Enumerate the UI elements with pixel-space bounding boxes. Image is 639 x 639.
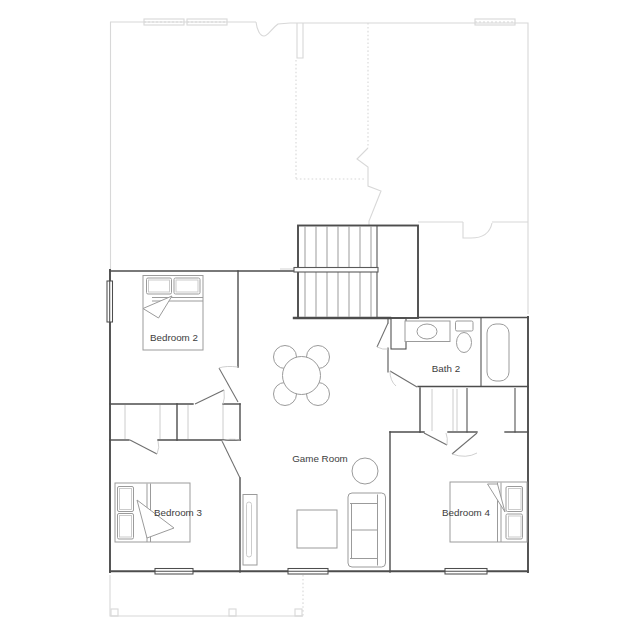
gameroom-label: Game Room [292, 453, 348, 464]
sink-icon [417, 324, 437, 339]
bathtub-icon [487, 324, 509, 381]
square-table-icon [297, 510, 337, 548]
sofa-icon [348, 493, 386, 567]
round-table-icon [283, 357, 321, 395]
bedroom4-door [452, 433, 477, 456]
bedroom2-door [219, 366, 238, 402]
side-table-icon [352, 458, 378, 484]
bedroom2-closet-door [195, 390, 224, 404]
toilet-tank-icon [456, 321, 474, 331]
bedroom3-door [222, 439, 240, 478]
bedroom4-label: Bedroom 4 [442, 507, 490, 518]
bedroom3-label: Bedroom 3 [154, 507, 202, 518]
hall-closet-door [424, 433, 447, 445]
floor-plan-drawing: Bedroom 2 Bath 2 Game Room Bedroom 3 Bed… [0, 0, 639, 639]
gameroom-table-set [274, 346, 330, 406]
bedroom2-label: Bedroom 2 [150, 332, 198, 343]
floor-plan-page: Bedroom 2 Bath 2 Game Room Bedroom 3 Bed… [0, 0, 639, 639]
porch-outline [110, 575, 303, 616]
toilet-bowl-icon [457, 333, 472, 353]
bath2-label: Bath 2 [432, 363, 460, 374]
stair-handrail [294, 268, 378, 273]
stair-closet-door [377, 323, 388, 349]
bath2-door [390, 371, 417, 387]
tall-cabinet-icon [243, 495, 257, 566]
bedroom3-closet-door [130, 440, 159, 454]
staircase [294, 226, 418, 319]
